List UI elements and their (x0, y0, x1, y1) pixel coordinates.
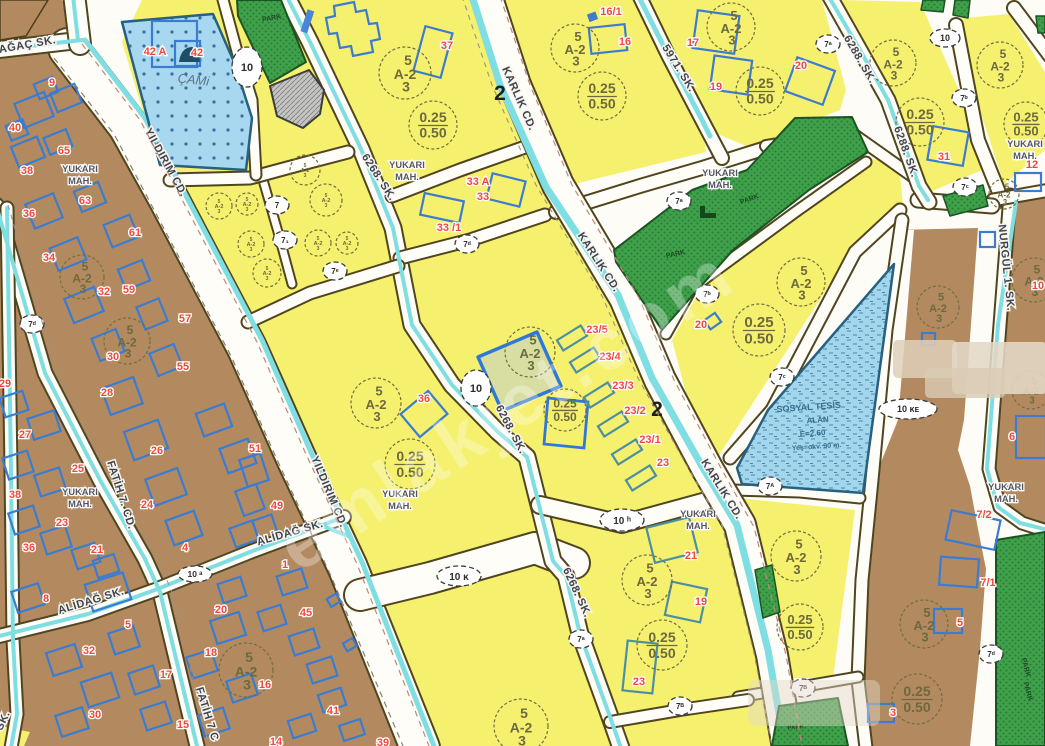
svg-text:23/2: 23/2 (624, 405, 645, 417)
svg-text:36: 36 (23, 208, 35, 220)
svg-text:0.25: 0.25 (588, 80, 615, 96)
svg-text:7ᶜ: 7ᶜ (778, 373, 786, 382)
svg-text:3: 3 (936, 313, 942, 325)
svg-text:21: 21 (685, 550, 697, 562)
svg-text:YUKARI: YUKARI (1007, 139, 1043, 149)
svg-text:57: 57 (179, 313, 191, 325)
svg-text:7ᶜ: 7ᶜ (961, 183, 969, 192)
svg-text:5: 5 (938, 292, 944, 304)
svg-text:0.50: 0.50 (903, 699, 930, 715)
svg-text:0.25: 0.25 (906, 106, 933, 122)
svg-text:7ᵈ: 7ᵈ (28, 320, 36, 329)
svg-text:10: 10 (241, 62, 253, 74)
svg-text:0.50: 0.50 (588, 95, 615, 111)
svg-text:25: 25 (72, 463, 84, 475)
svg-text:7ᴬ: 7ᴬ (766, 482, 774, 491)
svg-text:0.50: 0.50 (906, 121, 933, 137)
svg-text:0.25: 0.25 (787, 612, 812, 627)
svg-text:3: 3 (1029, 396, 1035, 407)
svg-text:5: 5 (246, 197, 249, 203)
svg-text:3: 3 (243, 676, 251, 692)
svg-text:0.25: 0.25 (419, 109, 446, 125)
svg-text:5: 5 (218, 199, 221, 205)
svg-text:3: 3 (1003, 198, 1008, 207)
svg-text:3: 3 (793, 562, 800, 577)
svg-text:16: 16 (259, 679, 271, 691)
svg-text:3: 3 (798, 287, 805, 302)
svg-text:10: 10 (940, 33, 950, 43)
svg-text:10 ᴋ: 10 ᴋ (449, 572, 469, 583)
svg-text:3: 3 (644, 586, 651, 601)
svg-text:23: 23 (657, 457, 669, 469)
svg-text:10 ᵃ: 10 ᵃ (187, 569, 203, 579)
svg-text:3: 3 (218, 209, 221, 215)
svg-text:5: 5 (346, 236, 349, 242)
svg-text:3: 3 (325, 203, 328, 209)
svg-text:30: 30 (89, 709, 101, 721)
svg-text:2: 2 (651, 398, 663, 421)
svg-text:5: 5 (125, 619, 131, 631)
svg-text:5: 5 (304, 163, 307, 169)
svg-text:18: 18 (205, 647, 217, 659)
svg-text:39: 39 (377, 737, 389, 746)
svg-text:34: 34 (43, 252, 56, 264)
svg-text:3: 3 (266, 276, 269, 282)
svg-text:27: 27 (19, 429, 31, 441)
svg-text:7ᵃ: 7ᵃ (675, 197, 682, 206)
svg-text:3: 3 (246, 207, 249, 213)
svg-text:5: 5 (957, 617, 963, 629)
svg-text:MAH.: MAH. (395, 172, 419, 182)
svg-text:YUKARI: YUKARI (988, 482, 1024, 492)
svg-text:23/1: 23/1 (639, 434, 660, 446)
svg-text:38: 38 (9, 489, 21, 501)
svg-text:7₁: 7₁ (281, 236, 289, 245)
svg-text:10: 10 (1032, 280, 1044, 292)
svg-text:0.25: 0.25 (746, 75, 773, 91)
svg-text:3: 3 (402, 79, 410, 95)
svg-text:55: 55 (177, 361, 189, 373)
svg-text:3: 3 (921, 629, 928, 644)
svg-text:32: 32 (83, 645, 95, 657)
svg-text:MAH.: MAH. (994, 494, 1018, 504)
svg-text:63: 63 (79, 195, 91, 207)
svg-text:21: 21 (91, 544, 103, 556)
svg-text:0.25: 0.25 (744, 314, 773, 331)
svg-text:32: 32 (98, 286, 110, 298)
svg-text:17: 17 (687, 37, 699, 49)
svg-text:YUKARI: YUKARI (680, 509, 716, 519)
svg-text:7ᵈ: 7ᵈ (987, 650, 995, 659)
svg-text:9: 9 (49, 77, 55, 89)
svg-text:5: 5 (325, 193, 328, 199)
svg-text:42 A: 42 A (144, 46, 167, 58)
svg-text:7ᵃ: 7ᵃ (824, 40, 831, 49)
svg-text:12: 12 (1026, 159, 1038, 171)
svg-text:7ᴮ: 7ᴮ (676, 702, 684, 711)
svg-text:33 A: 33 A (467, 176, 490, 188)
svg-text:0.50: 0.50 (746, 90, 773, 106)
svg-text:3: 3 (998, 71, 1005, 85)
svg-text:0.50: 0.50 (419, 124, 446, 140)
svg-text:45: 45 (300, 607, 312, 619)
svg-text:41: 41 (327, 705, 339, 717)
svg-text:MAH.: MAH. (68, 499, 92, 509)
svg-text:E=2.60: E=2.60 (800, 428, 827, 439)
svg-text:MAH.: MAH. (68, 176, 92, 186)
svg-text:38: 38 (21, 165, 33, 177)
svg-text:33 /1: 33 /1 (437, 222, 461, 234)
svg-text:40: 40 (9, 122, 21, 134)
svg-text:65: 65 (58, 145, 70, 157)
svg-text:10 ᴋᴇ: 10 ᴋᴇ (897, 404, 920, 414)
svg-text:29: 29 (0, 378, 11, 390)
svg-text:19: 19 (710, 81, 722, 93)
svg-text:0.25: 0.25 (648, 629, 675, 645)
svg-text:10 ʰ: 10 ʰ (613, 516, 631, 527)
svg-text:61: 61 (129, 227, 141, 239)
svg-text:42: 42 (191, 47, 203, 59)
svg-text:MAH.: MAH. (708, 180, 732, 190)
svg-text:0.50: 0.50 (787, 627, 812, 642)
svg-text:6: 6 (1009, 431, 1015, 443)
svg-text:36: 36 (23, 542, 35, 554)
svg-text:37: 37 (441, 40, 453, 52)
svg-text:3: 3 (250, 247, 253, 253)
svg-text:3: 3 (891, 69, 898, 83)
svg-text:0.25: 0.25 (903, 683, 930, 699)
svg-text:YUKARI: YUKARI (62, 487, 98, 497)
svg-text:3: 3 (728, 32, 735, 47)
svg-text:16/1: 16/1 (600, 6, 621, 18)
svg-text:23: 23 (633, 676, 645, 688)
svg-text:19: 19 (695, 596, 707, 608)
svg-text:20: 20 (215, 604, 227, 616)
svg-text:0.50: 0.50 (648, 645, 675, 661)
svg-text:7: 7 (275, 201, 280, 210)
svg-text:33: 33 (477, 191, 489, 203)
svg-text:ALAN: ALAN (806, 415, 829, 426)
svg-text:31: 31 (938, 151, 950, 163)
svg-text:51: 51 (249, 443, 261, 455)
svg-text:0.50: 0.50 (1013, 123, 1038, 138)
svg-text:YUKARI: YUKARI (389, 160, 425, 170)
svg-text:7/2: 7/2 (976, 509, 991, 521)
svg-text:36: 36 (418, 393, 430, 405)
svg-text:0.50: 0.50 (744, 331, 773, 348)
svg-text:14: 14 (270, 736, 283, 746)
svg-text:26: 26 (151, 445, 163, 457)
svg-text:24: 24 (141, 499, 154, 511)
svg-text:7ᵇ: 7ᵇ (960, 94, 968, 103)
svg-text:20: 20 (795, 60, 807, 72)
svg-text:3: 3 (518, 732, 526, 746)
svg-text:5: 5 (266, 266, 269, 272)
svg-text:17: 17 (160, 669, 172, 681)
svg-text:3: 3 (125, 347, 132, 361)
svg-text:7ᵉ: 7ᵉ (331, 267, 338, 276)
svg-text:3: 3 (317, 246, 320, 252)
svg-text:5: 5 (250, 237, 253, 243)
svg-text:MAH.: MAH. (686, 521, 710, 531)
svg-text:YUKARI: YUKARI (702, 168, 738, 178)
svg-text:3: 3 (346, 246, 349, 252)
svg-text:16: 16 (619, 36, 631, 48)
svg-text:23: 23 (56, 517, 68, 529)
svg-text:4: 4 (182, 542, 189, 554)
svg-text:1: 1 (282, 559, 288, 571)
svg-text:3: 3 (572, 53, 579, 68)
svg-text:5: 5 (317, 236, 320, 242)
svg-text:8: 8 (43, 593, 49, 605)
svg-text:7/1: 7/1 (980, 577, 995, 589)
svg-text:3: 3 (373, 409, 380, 424)
svg-text:7ᵃ: 7ᵃ (577, 635, 584, 644)
svg-text:30: 30 (107, 351, 119, 363)
svg-text:0.25: 0.25 (1013, 109, 1038, 124)
svg-text:59: 59 (123, 284, 135, 296)
svg-text:7ᵈ: 7ᵈ (463, 240, 471, 249)
svg-text:28: 28 (101, 387, 113, 399)
svg-text:15: 15 (177, 719, 189, 731)
svg-text:3: 3 (304, 173, 307, 179)
svg-text:3: 3 (80, 282, 87, 296)
svg-text:YUKARI: YUKARI (62, 164, 98, 174)
svg-text:3: 3 (890, 707, 896, 719)
